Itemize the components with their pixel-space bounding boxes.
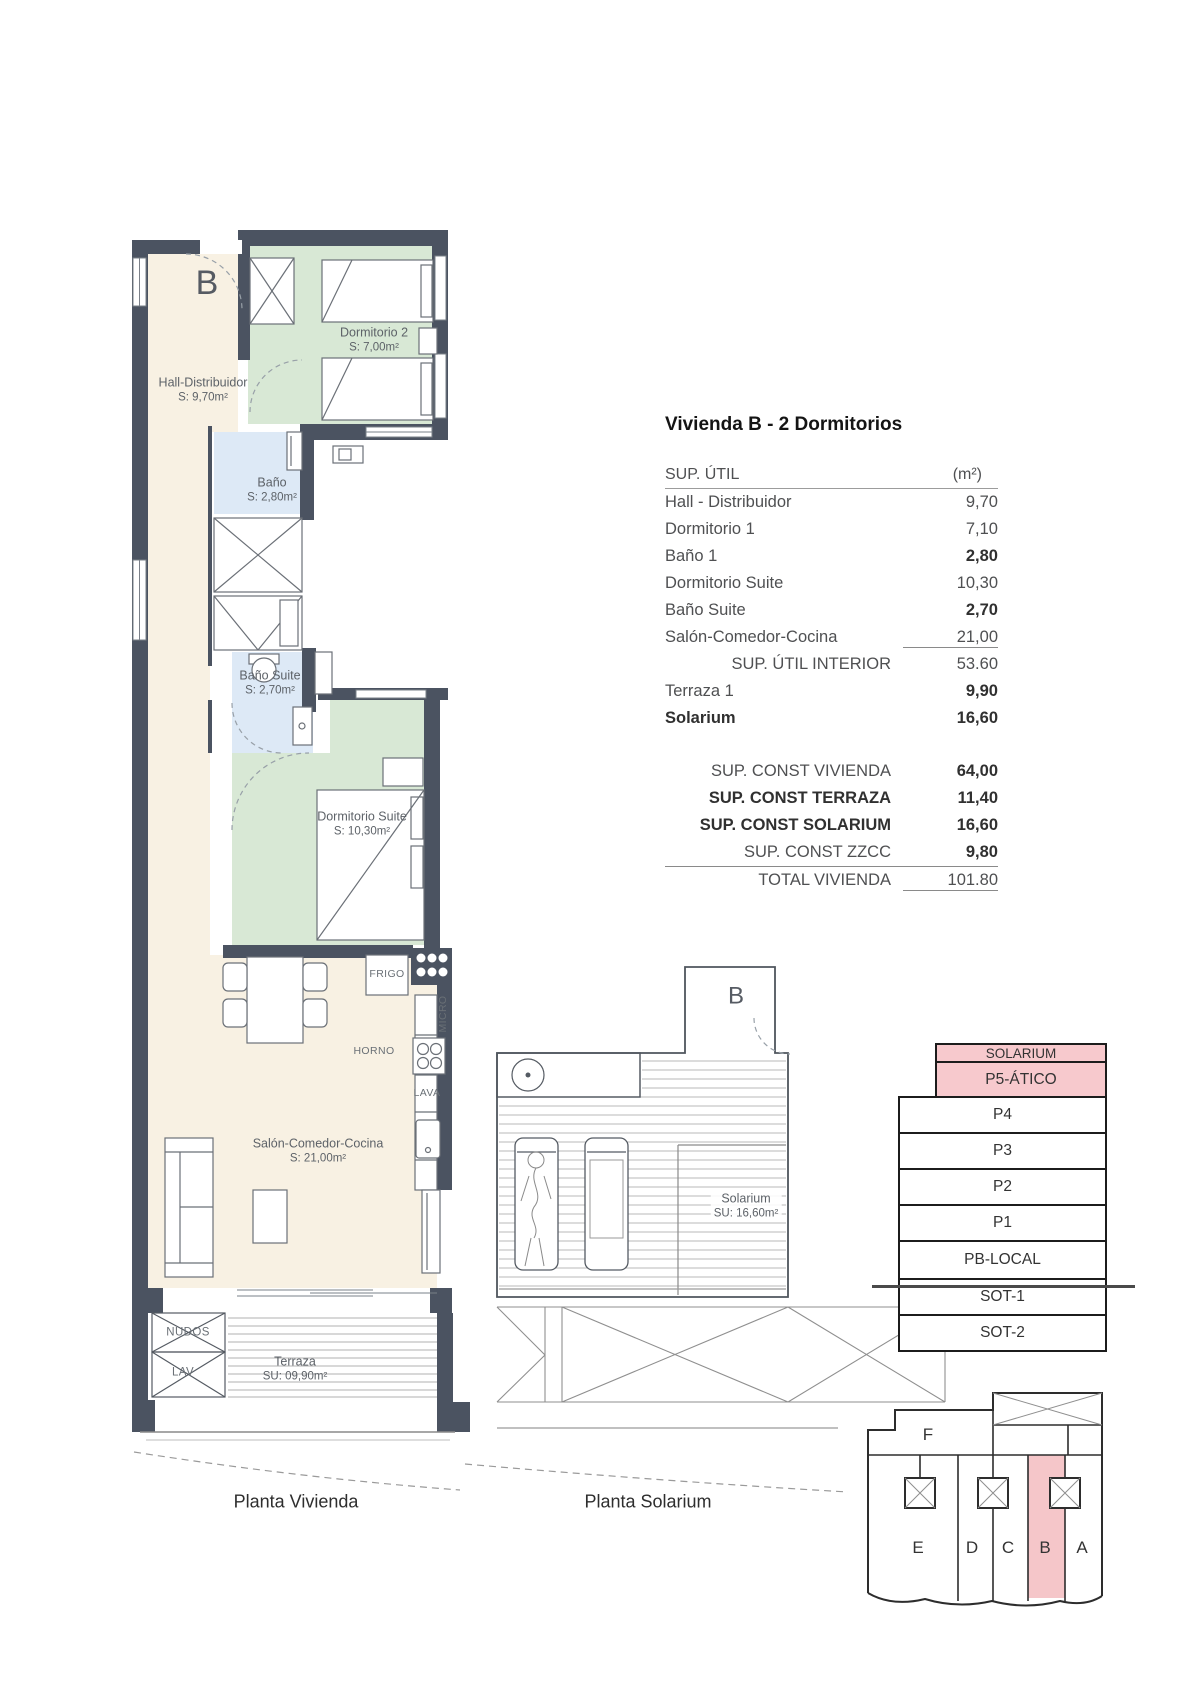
room-label-solarium: Solarium SU: 16,60m² [711,1189,782,1222]
key-plan-unit-e: E [912,1537,923,1559]
kitchen-label-horno: HORNO [353,1045,394,1059]
page-title: Vivienda B - 2 Dormitorios [665,414,902,436]
table-row: Dormitorio Suite 10,30 [665,570,998,597]
table-row-const: SUP. CONST ZZCC 9,80 [665,839,998,866]
table-row-subtotal: SUP. ÚTIL INTERIOR 53.60 [665,651,998,678]
shaft-label-lav: LAV [172,1366,194,1381]
key-plan-unit-d: D [966,1537,978,1559]
key-plan-unit-c: C [1002,1537,1014,1559]
table-header-unit: (m²) [887,466,998,484]
floor-level-p1: P1 [898,1204,1107,1242]
kitchen-label-micro: MICRO [437,996,451,1033]
floor-level-p3: P3 [898,1132,1107,1170]
table-row-total: TOTAL VIVIENDA 101.80 [665,866,998,894]
floorplan-sheet: B Hall-Distribuidor S: 9,70m² Dormitorio… [0,0,1200,1697]
crossed-band [497,1307,945,1402]
floor-level-pb-local: PB-LOCAL [898,1240,1107,1280]
caption-planta-vivienda: Planta Vivienda [234,1490,359,1513]
room-label-bano-suite: Baño Suite S: 2,70m² [239,667,300,698]
floor-level-p5-atico: P5-ÁTICO [935,1061,1107,1098]
table-row-const: SUP. CONST SOLARIUM 16,60 [665,812,998,839]
table-row: Baño 1 2,80 [665,543,998,570]
plans-drawing [0,0,1200,1697]
surface-table: SUP. ÚTIL (m²) Hall - Distribuidor 9,70 … [665,462,998,894]
key-plan-unit-a: A [1076,1537,1087,1559]
table-row-const: SUP. CONST VIVIENDA 64,00 [665,758,998,785]
room-label-terraza: Terraza SU: 09,90m² [263,1353,328,1384]
key-plan-highlight-b [1028,1455,1065,1598]
ground-line [872,1285,1135,1288]
floor-level-sot-2: SOT-2 [898,1314,1107,1352]
table-row: Baño Suite 2,70 [665,597,998,624]
solarium-unit-letter: B [728,980,744,1011]
room-label-bano: Baño S: 2,80m² [247,474,297,505]
key-plan-unit-b: B [1039,1537,1050,1559]
terrace-decking [228,1318,437,1397]
shaft-label-nudos: NUDOS [166,1326,210,1341]
table-header: SUP. ÚTIL (m²) [665,462,998,489]
table-row: Dormitorio 1 7,10 [665,516,998,543]
table-row: Solarium 16,60 [665,705,998,732]
table-row: Terraza 1 9,90 [665,678,998,705]
floor-level-p4: P4 [898,1096,1107,1134]
table-row: Salón-Comedor-Cocina 21,00 [665,624,998,651]
table-section-gap [665,732,998,758]
plan-unit-letter: B [196,261,219,305]
table-header-label: SUP. ÚTIL [665,466,887,484]
room-area: S: 9,70m² [159,391,248,406]
kitchen-label-frigo: FRIGO [369,968,404,982]
room-label-dorm2: Dormitorio 2 S: 7,00m² [340,324,408,355]
floor-level-solarium: SOLARIUM [935,1043,1107,1063]
planta-solarium-drawing [465,967,945,1492]
below-plan-lines [134,1432,460,1490]
table-row-const: SUP. CONST TERRAZA 11,40 [665,785,998,812]
key-plan-drawing [868,1393,1102,1606]
room-name: Hall-Distribuidor [159,374,248,390]
floor-level-sot-1: SOT-1 [898,1278,1107,1316]
room-label-dorm-suite: Dormitorio Suite S: 10,30m² [317,808,407,839]
kitchen-label-lava: LAVA [414,1087,441,1101]
room-label-salon: Salón-Comedor-Cocina S: 21,00m² [253,1135,384,1166]
caption-planta-solarium: Planta Solarium [584,1490,711,1513]
key-plan-unit-f: F [923,1424,933,1446]
planta-vivienda-drawing [132,230,470,1490]
table-row: Hall - Distribuidor 9,70 [665,489,998,516]
room-label-hall: Hall-Distribuidor S: 9,70m² [159,374,248,405]
floor-level-p2: P2 [898,1168,1107,1206]
